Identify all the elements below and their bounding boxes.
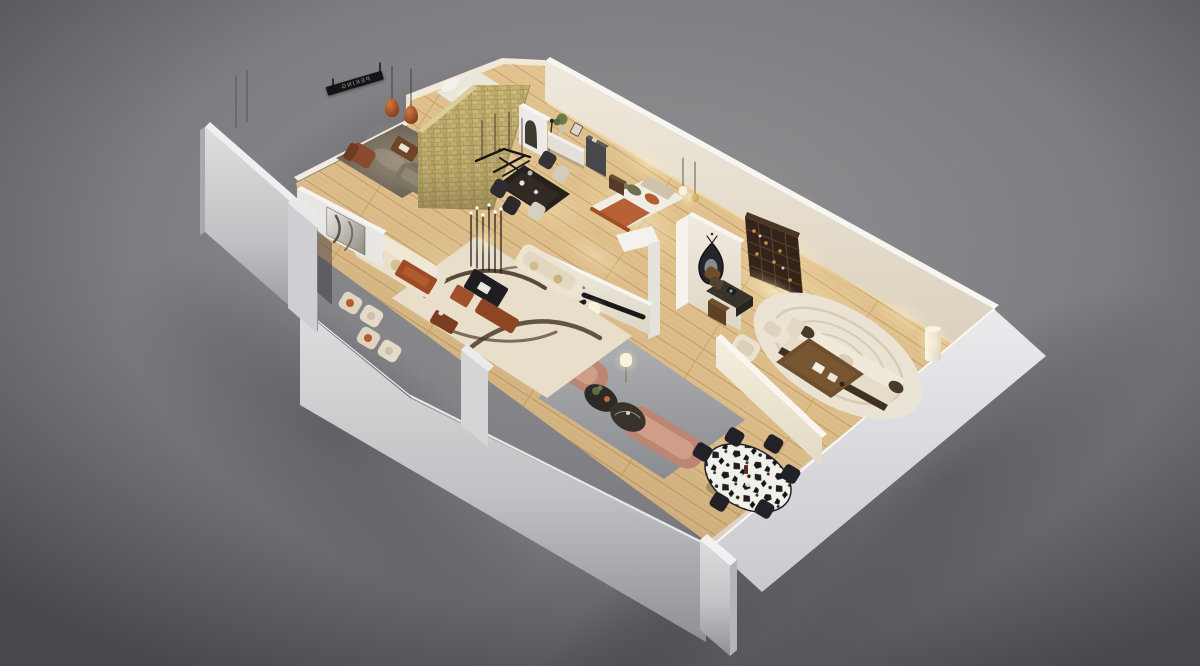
corner-lamp-glow xyxy=(915,324,951,360)
table1-plant-2 xyxy=(598,386,603,391)
dining-plate-2 xyxy=(534,190,538,194)
rod-tip-6 xyxy=(499,207,502,210)
dining-flowers xyxy=(528,171,533,176)
dining2-glass-2 xyxy=(753,479,757,483)
armchair-3-seat xyxy=(364,334,372,342)
armchair-4-seat xyxy=(385,347,393,355)
plant-foliage-2 xyxy=(554,119,561,126)
rod-lamp-glow xyxy=(470,224,502,256)
doorway-gap-shadow xyxy=(317,230,332,305)
freestanding-wall-end xyxy=(200,127,205,235)
shelf-item-5 xyxy=(772,260,776,264)
dining-plate-1 xyxy=(519,180,524,185)
table1-orange-bowl xyxy=(604,396,610,402)
black-floor-lamp-head xyxy=(550,119,554,123)
shelf-item-6 xyxy=(788,278,792,282)
dining2-glass-1 xyxy=(739,473,743,477)
rod-tip-1 xyxy=(469,211,472,214)
shelf-item-8 xyxy=(782,267,785,270)
sofa-b-pillow-1 xyxy=(530,262,539,271)
console-vase xyxy=(439,311,444,316)
sofa-b-pillow-2 xyxy=(554,275,563,284)
armchair-1-seat xyxy=(346,299,354,307)
shelf-item-4 xyxy=(755,252,759,256)
rod-tip-4 xyxy=(487,203,490,206)
shelf-item-1 xyxy=(752,229,756,233)
dining2-bottle xyxy=(744,465,748,474)
rod-tip-3 xyxy=(481,213,484,216)
table-bowl xyxy=(840,382,845,387)
south-pillar-side xyxy=(730,560,737,656)
armchair-2-seat xyxy=(367,312,375,320)
render-stage: PEKING xyxy=(0,0,1200,666)
table2-decor xyxy=(626,411,630,415)
bedside-pendant-glow xyxy=(677,185,701,209)
shelf-item-3 xyxy=(778,249,782,253)
mirror-hook xyxy=(711,233,714,236)
shelf-item-2 xyxy=(764,241,768,245)
apartment-isometric-render xyxy=(0,0,1200,666)
plant-pot xyxy=(559,126,564,132)
floor-lamp-b-glow xyxy=(613,348,639,374)
rod-tip-5 xyxy=(493,210,496,213)
dining2-plate xyxy=(745,481,751,487)
laptop-screen-glow xyxy=(729,289,732,292)
mirror-wall-end xyxy=(676,215,688,310)
rod-tip-2 xyxy=(475,206,478,209)
shelf-item-7 xyxy=(759,235,762,238)
